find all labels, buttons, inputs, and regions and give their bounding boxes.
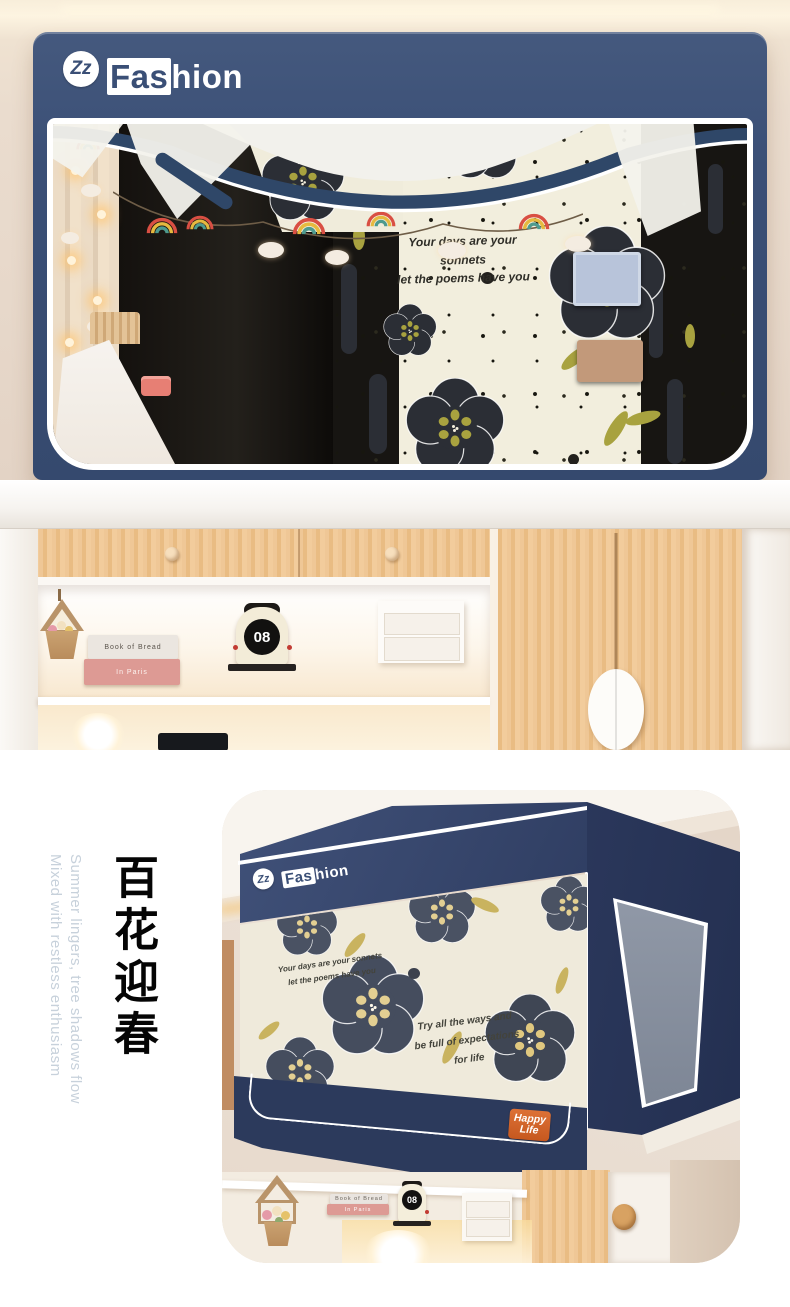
bed-curtain-frame: Zz Fashion [33,32,767,480]
brand-band: Zz Fashion [33,32,767,118]
organizer-drawer [384,613,460,635]
fold-flower-sliver [341,264,357,354]
clock-face: 08 [244,619,280,655]
drawer-organizer [378,601,464,663]
top-photo-scene: Zz Fashion [0,0,790,480]
desk-scene: Book of Bread In Paris 08 [0,529,790,750]
card-clock-base [393,1221,431,1226]
headline-chinese: 百花迎春 [100,854,165,1154]
fabric-quote-line2: let the poems have you [397,269,530,286]
organizer-drawer [384,637,460,661]
handle-split [615,669,617,750]
right-post [742,529,790,750]
organizer-drawer [466,1201,510,1218]
cloud-icon [325,250,349,265]
bottom-section: 百花迎春 Summer lingers, tree shadows flow M… [0,750,790,1307]
shelf-board [38,697,490,705]
wardrobe-edge [490,529,498,750]
zz-monogram-icon: Zz [63,51,99,87]
clock-button [287,645,292,650]
drawer-knob [165,547,179,561]
badge-line2: Life [519,1124,538,1136]
card-book-spine: Book of Bread [330,1194,388,1204]
door-strip [222,940,234,1110]
drawer-knob [385,547,399,561]
card-book-spine: In Paris [327,1204,389,1215]
pinned-photo [573,252,641,306]
berry-icon [568,454,579,465]
clock-base [228,664,296,671]
drawer-rail [38,577,490,585]
book-title: In Paris [116,669,148,676]
flower-icon [405,378,505,470]
string-light [65,338,74,347]
left-post [0,529,38,750]
organizer-drawer [466,1219,510,1237]
flower-dot [262,1210,272,1220]
headboard-ledge [0,480,790,529]
zz-monogram-icon: Zz [251,867,275,891]
tagline-english-2: Mixed with restless enthusiasm [47,854,64,1154]
card-clock-button [425,1210,429,1214]
pinned-photo [577,340,643,382]
happy-life-badge: Happy Life [508,1108,551,1141]
book-spine: In Paris [84,659,180,685]
tablet [158,733,228,750]
string-light [67,256,76,265]
clock-button [233,645,238,650]
basket-hook [58,589,61,601]
fold-leaf [685,324,695,348]
brand-logo: Zz Fashion [63,58,243,96]
brand-name: Fashion [107,58,243,96]
card-cabinet-knob [612,1204,636,1230]
photo-window: Your days are your sonnets let the poems… [47,118,753,470]
wooden-slat-box [90,312,140,344]
drawer-divider [298,529,300,577]
desk-lamp-glow [70,713,126,750]
fold-flower-sliver [667,379,683,464]
tagline-english-1: Summer lingers, tree shadows flow [67,854,84,1154]
vertical-headline: 百花迎春 Summer lingers, tree shadows flow M… [44,854,165,1154]
product-card: Your days are your sonnets let the poems… [222,790,740,1263]
book-spine: Book of Bread [88,635,178,659]
ceiling-light-glow [60,6,720,14]
card-clock-face: 08 [402,1190,422,1210]
fold-flower-sliver [369,374,387,454]
card-organizer [462,1193,512,1241]
string-light [93,296,102,305]
flower-icon [383,304,437,358]
clock-number: 08 [254,629,271,646]
card-cabinet-wood [522,1170,610,1263]
toy-phone [141,376,171,396]
product-detail-page: Zz Fashion [0,0,790,1307]
book-title: Book of Bread [104,644,161,651]
card-right-wall [670,1160,740,1263]
berry-icon [408,968,420,979]
leaf-icon [553,966,571,995]
